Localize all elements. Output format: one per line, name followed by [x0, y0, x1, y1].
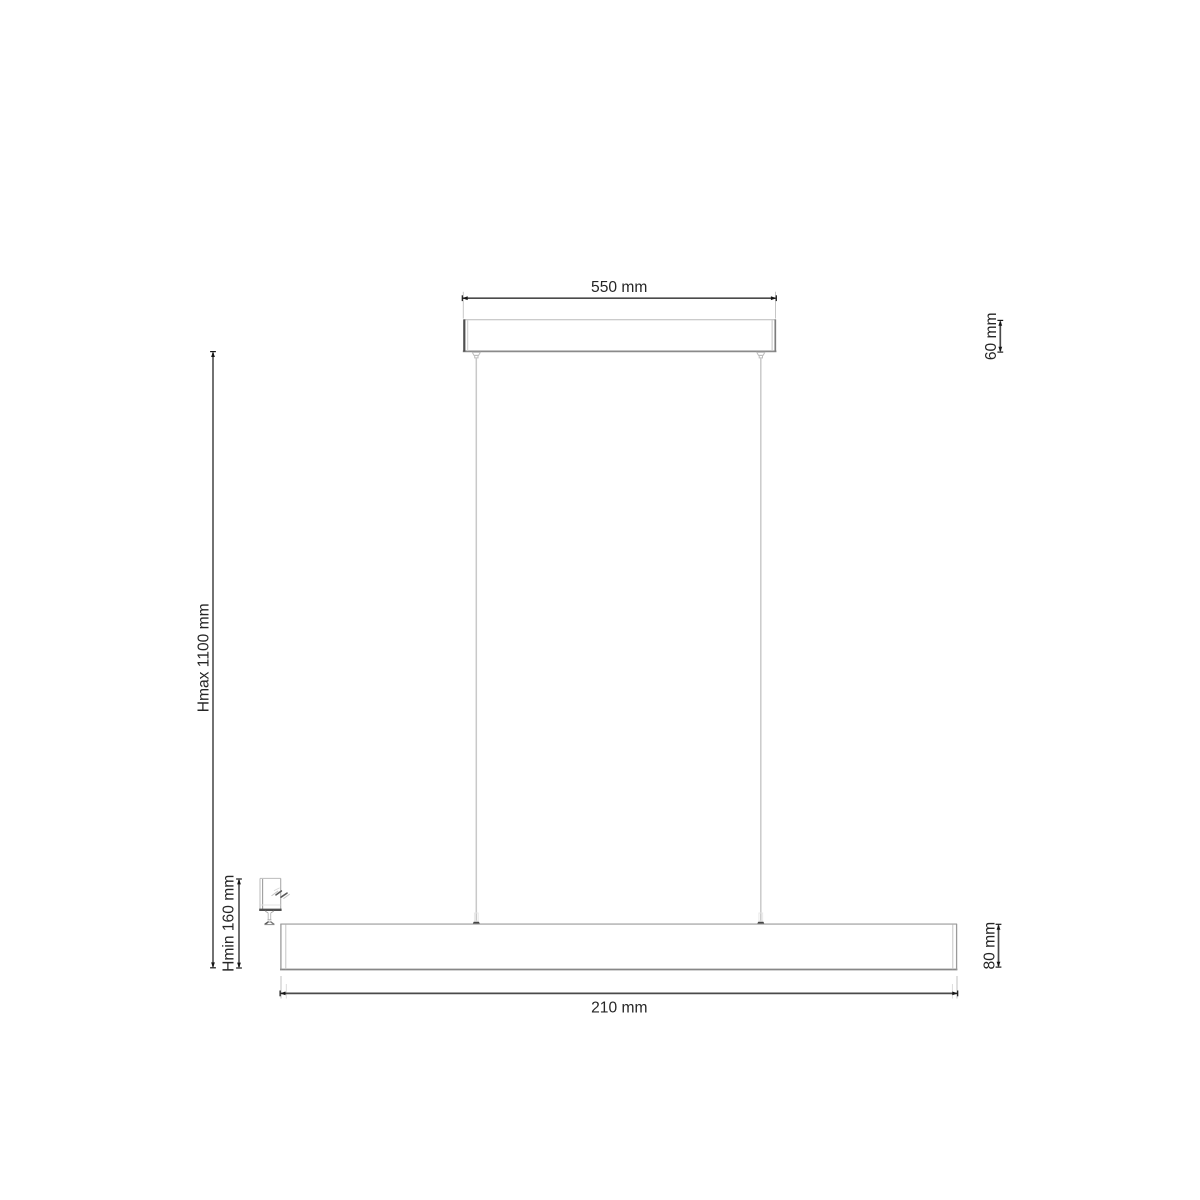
svg-text:60 mm: 60 mm	[983, 312, 1000, 360]
svg-text:550 mm: 550 mm	[591, 279, 647, 296]
svg-text:210 mm: 210 mm	[591, 1000, 647, 1017]
svg-text:Hmax 1100 mm: Hmax 1100 mm	[195, 603, 212, 712]
svg-text:80 mm: 80 mm	[981, 922, 998, 970]
svg-text:Hmin 160 mm: Hmin 160 mm	[221, 875, 238, 972]
